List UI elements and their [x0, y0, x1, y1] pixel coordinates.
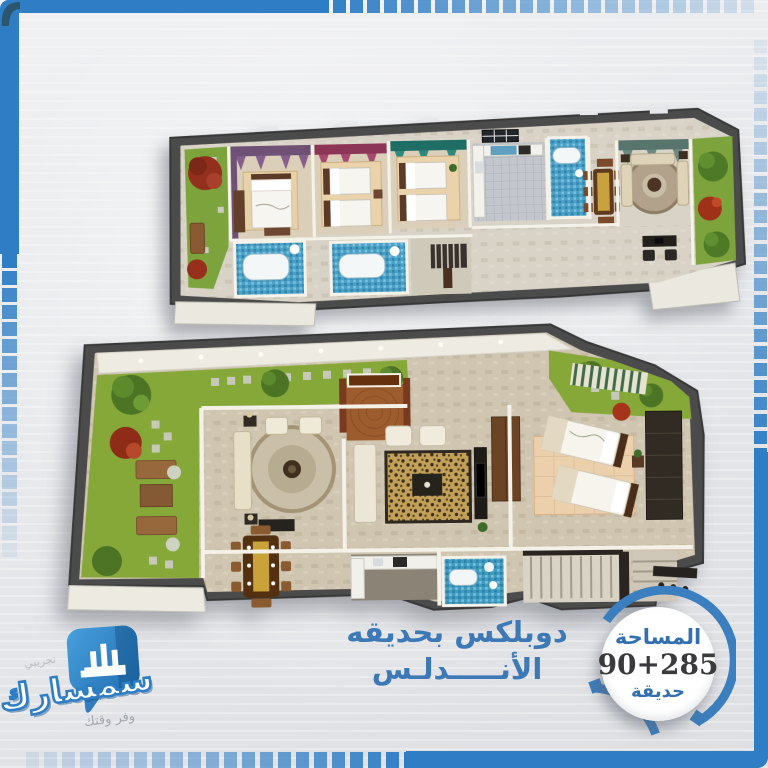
- frame-pixel: [296, 752, 309, 768]
- frame-pixel: [2, 458, 17, 472]
- dresser: [264, 227, 290, 236]
- frame-pixel: [224, 752, 237, 768]
- frame-pixel: [571, 0, 584, 13]
- frame-pixel: [435, 0, 448, 13]
- frame-pixel: [404, 752, 417, 768]
- frame-pixel: [754, 91, 767, 104]
- frame-pixel: [2, 356, 17, 370]
- frame-pixel: [639, 0, 652, 13]
- wardrobe: [233, 190, 245, 232]
- frame-pixel: [418, 0, 431, 13]
- bedroom-pink: [314, 143, 388, 234]
- frame-pixel: [2, 271, 17, 285]
- frame-pixel: [554, 0, 567, 13]
- frame-pixel: [754, 74, 767, 87]
- upper-floor-plan: [167, 108, 746, 329]
- frame-pixel: [332, 752, 345, 768]
- frame-pixel: [367, 0, 380, 13]
- frame-pixel: [401, 0, 414, 13]
- garden-bench: [190, 223, 205, 253]
- corner-curl-icon: [0, 0, 24, 28]
- frame-pixel: [333, 0, 346, 13]
- frame-right-border: [754, 452, 768, 768]
- frame-pixel: [486, 0, 499, 13]
- frame-pixel: [622, 0, 635, 13]
- frame-pixel: [754, 397, 767, 410]
- bathroom-2: [330, 241, 407, 295]
- frame-pixel: [2, 526, 17, 540]
- frame-pixel: [2, 305, 17, 319]
- bedroom-teal: [390, 140, 468, 230]
- kitchen: [351, 554, 439, 601]
- title-line-1: دوبلكس بحديقه: [326, 614, 588, 651]
- right-garden: [692, 136, 736, 265]
- frame-pixel: [754, 431, 767, 444]
- frame-pixel: [2, 475, 17, 489]
- frame-pixel: [503, 0, 516, 13]
- parapet-bottom-left: [67, 584, 205, 613]
- frame-pixel: [469, 0, 482, 13]
- hallway: [410, 236, 471, 295]
- frame-pixel: [2, 509, 17, 523]
- frame-pixel: [2, 424, 17, 438]
- living-room: [618, 139, 690, 226]
- title-line-2: الأنـــــدلـس: [326, 651, 588, 688]
- frame-pixel: [741, 0, 754, 13]
- frame-pixel: [754, 346, 767, 359]
- frame-pixel: [520, 0, 533, 13]
- badge-area-value: 90+285: [598, 649, 719, 681]
- frame-pixel: [316, 0, 329, 13]
- listing-title: دوبلكس بحديقه الأنـــــدلـس: [326, 614, 588, 688]
- frame-pixel: [2, 492, 17, 506]
- frame-pixel: [754, 380, 767, 393]
- frame-pixel: [2, 322, 17, 336]
- frame-pixel: [206, 752, 219, 768]
- frame-pixel: [707, 0, 720, 13]
- frame-pixel: [754, 414, 767, 427]
- brand-logo: تجريبي سمسارك وفر وقتك: [0, 613, 200, 763]
- ground-floor-plan-render: [50, 314, 753, 619]
- frame-left-border: [0, 0, 19, 254]
- frame-pixel: [2, 543, 17, 557]
- frame-pixel: [673, 0, 686, 13]
- frame-pixel: [588, 0, 601, 13]
- badge-area-label: المساحة: [615, 625, 701, 649]
- frame-pixel: [754, 329, 767, 342]
- frame-pixel: [2, 373, 17, 387]
- frame-pixel: [2, 254, 17, 268]
- frame-pixel: [242, 752, 255, 768]
- frame-pixel: [2, 339, 17, 353]
- frame-pixel: [754, 57, 767, 70]
- frame-top-border: [0, 0, 318, 13]
- frame-pixel: [386, 752, 399, 768]
- frame-pixel: [260, 752, 273, 768]
- bathroom-3: [548, 137, 588, 218]
- frame-pixel: [278, 752, 291, 768]
- frame-pixel: [754, 40, 767, 53]
- bathroom-1: [234, 241, 305, 296]
- frame-pixel: [656, 0, 669, 13]
- logo-trial-label: تجريبي: [23, 653, 56, 671]
- frame-pixel: [350, 0, 363, 13]
- frame-pixel: [384, 0, 397, 13]
- frame-bottom-border: [406, 751, 768, 768]
- frame-pixel: [2, 441, 17, 455]
- badge-circle: المساحة 90+285 حديقة: [601, 607, 715, 721]
- frame-pixel: [537, 0, 550, 13]
- bedroom-purple: [230, 145, 312, 239]
- frame-pixel: [368, 752, 381, 768]
- closet: [645, 411, 682, 519]
- entry-double-doors: [348, 374, 400, 387]
- frame-pixel: [690, 0, 703, 13]
- bathroom: [443, 557, 505, 606]
- badge-garden-label: حديقة: [631, 681, 685, 703]
- frame-pixel: [754, 363, 767, 376]
- frame-pixel: [452, 0, 465, 13]
- frame-pixel: [350, 752, 363, 768]
- frame-pixel: [314, 752, 327, 768]
- upper-floor-plan-render: [140, 104, 760, 333]
- poster-background: دوبلكس بحديقه الأنـــــدلـس المساحة 90+2…: [0, 0, 768, 768]
- frame-pixel: [754, 448, 767, 461]
- frame-pixel: [2, 288, 17, 302]
- frame-pixel: [724, 0, 737, 13]
- ground-floor-plan: [65, 323, 706, 615]
- frame-pixel: [2, 407, 17, 421]
- frame-pixel: [605, 0, 618, 13]
- frame-pixel: [2, 390, 17, 404]
- area-badge: المساحة 90+285 حديقة: [580, 586, 736, 742]
